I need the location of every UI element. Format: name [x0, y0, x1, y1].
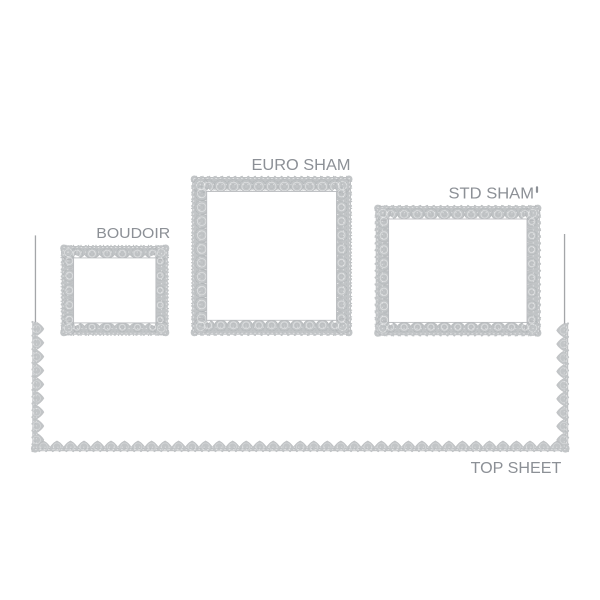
svg-text:EURO SHAM: EURO SHAM	[252, 157, 351, 174]
svg-text:STD SHAM: STD SHAM	[449, 185, 535, 202]
svg-text:TOP SHEET: TOP SHEET	[471, 460, 562, 477]
svg-text:BOUDOIR: BOUDOIR	[96, 226, 170, 242]
